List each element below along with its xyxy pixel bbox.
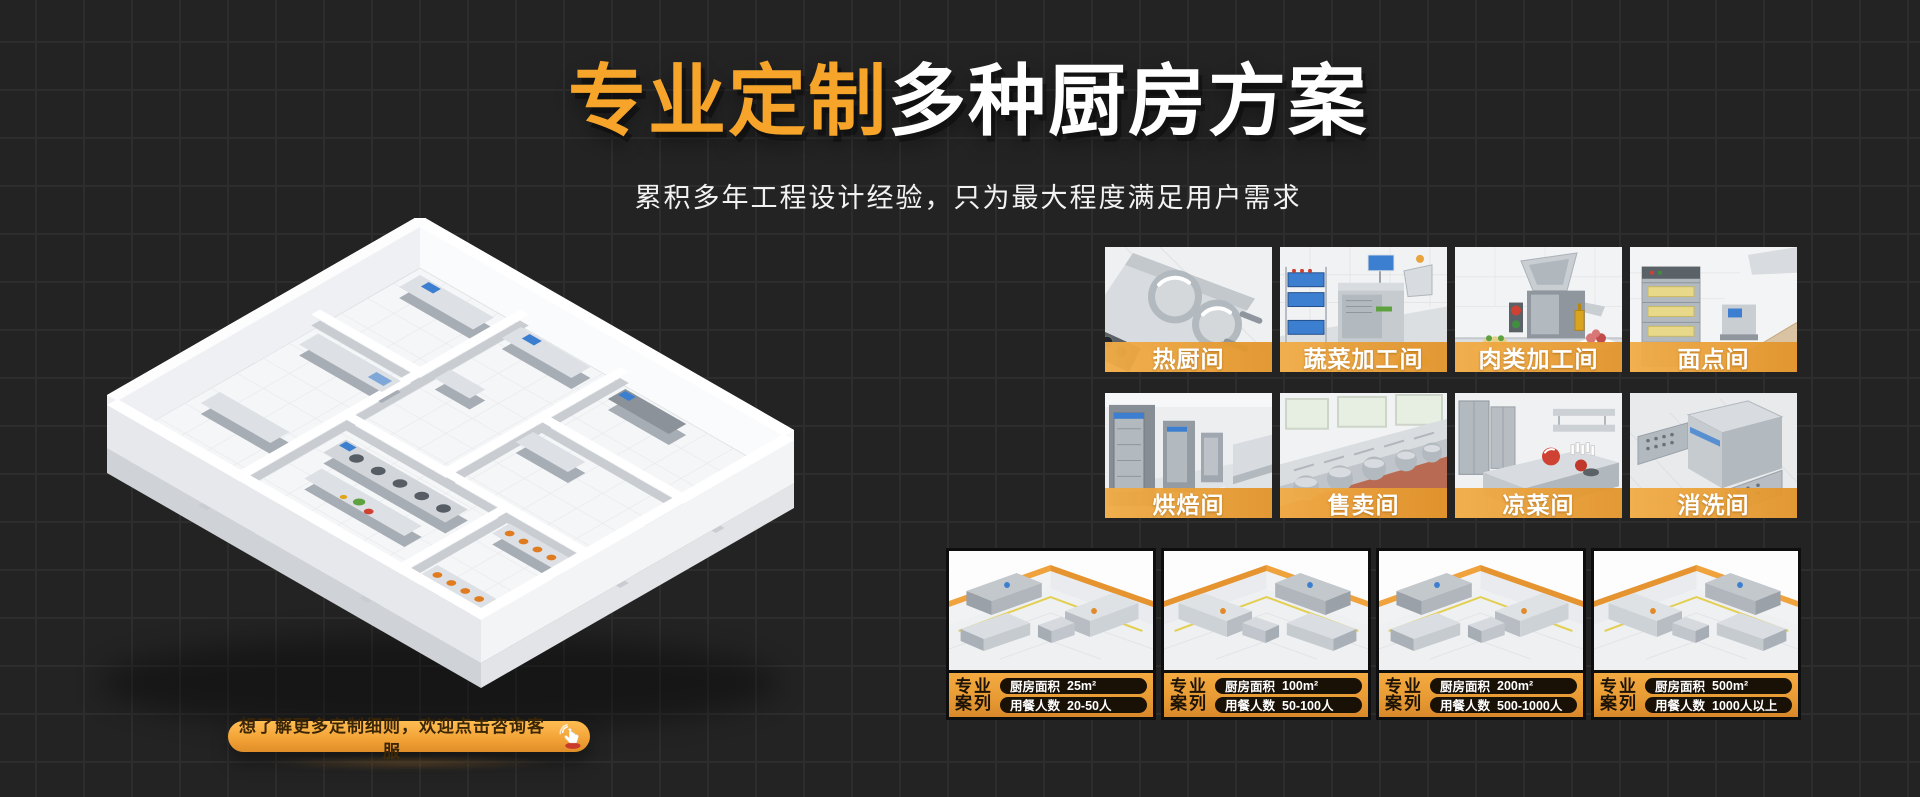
case-info-bar: 专业案列 厨房面积100m² 用餐人数50-100人 — [1164, 673, 1368, 717]
room-tile-vegetable-processing: 蔬菜加工间 — [1280, 247, 1447, 372]
page-title: 专业定制多种厨房方案 — [8, 62, 1920, 140]
room-tile-cold-dishes: 凉菜间 — [1455, 393, 1622, 518]
room-tile-label: 消洗间 — [1630, 488, 1797, 518]
room-tile-pastry: 面点间 — [1630, 247, 1797, 372]
title-rest: 多种厨房方案 — [888, 57, 1368, 145]
room-tile-hot-kitchen: 热厨间 — [1105, 247, 1272, 372]
room-tile-label: 蔬菜加工间 — [1280, 342, 1447, 372]
case-card-100m2: 专业案列 厨房面积100m² 用餐人数50-100人 — [1161, 548, 1371, 720]
page-subtitle: 累积多年工程设计经验，只为最大程度满足用户需求 — [8, 176, 1920, 215]
room-tile-label: 肉类加工间 — [1455, 342, 1622, 372]
case-tag: 专业案列 — [1385, 678, 1423, 713]
kitchen-area-pill: 厨房面积500m² — [1645, 678, 1792, 694]
consult-button-label: 想了解更多定制细则，欢迎点击咨询客服 — [234, 712, 550, 762]
case-kitchen-3d-photo — [1594, 551, 1798, 670]
click-hand-icon — [558, 724, 584, 750]
case-kitchen-3d-photo — [1379, 551, 1583, 670]
room-tile-label: 面点间 — [1630, 342, 1797, 372]
case-card-200m2: 专业案列 厨房面积200m² 用餐人数500-1000人 — [1376, 548, 1586, 720]
room-tile-label: 热厨间 — [1105, 342, 1272, 372]
case-card-25m2: 专业案列 厨房面积25m² 用餐人数20-50人 — [946, 548, 1156, 720]
case-row: 专业案列 厨房面积25m² 用餐人数20-50人 专业案列 厨房面积100m² … — [946, 548, 1801, 720]
room-tile-meat-processing: 肉类加工间 — [1455, 247, 1622, 372]
case-tag: 专业案列 — [1170, 678, 1208, 713]
kitchen-solutions-banner: 专业定制多种厨房方案 累积多年工程设计经验，只为最大程度满足用户需求 — [0, 0, 1920, 797]
case-info-bar: 专业案列 厨房面积200m² 用餐人数500-1000人 — [1379, 673, 1583, 717]
room-tile-dishwashing: 消洗间 — [1630, 393, 1797, 518]
kitchen-area-pill: 厨房面积25m² — [1000, 678, 1147, 694]
kitchen-floorplan-3d-illustration — [30, 218, 820, 763]
case-kitchen-3d-photo — [949, 551, 1153, 670]
case-kitchen-3d-photo — [1164, 551, 1368, 670]
room-tile-serving: 售卖间 — [1280, 393, 1447, 518]
case-info-bar: 专业案列 厨房面积25m² 用餐人数20-50人 — [949, 673, 1153, 717]
diner-count-pill: 用餐人数50-100人 — [1215, 697, 1362, 713]
kitchen-area-pill: 厨房面积100m² — [1215, 678, 1362, 694]
case-tag: 专业案列 — [955, 678, 993, 713]
room-tile-label: 凉菜间 — [1455, 488, 1622, 518]
title-highlight: 专业定制 — [568, 57, 888, 145]
room-grid: 热厨间 — [1105, 247, 1797, 518]
room-tile-label: 售卖间 — [1280, 488, 1447, 518]
diner-count-pill: 用餐人数500-1000人 — [1430, 697, 1577, 713]
room-tile-baking: 烘焙间 — [1105, 393, 1272, 518]
diner-count-pill: 用餐人数20-50人 — [1000, 697, 1147, 713]
case-tag: 专业案列 — [1600, 678, 1638, 713]
consult-button[interactable]: 想了解更多定制细则，欢迎点击咨询客服 — [228, 721, 590, 752]
diner-count-pill: 用餐人数1000人以上 — [1645, 697, 1792, 713]
kitchen-area-pill: 厨房面积200m² — [1430, 678, 1577, 694]
case-info-bar: 专业案列 厨房面积500m² 用餐人数1000人以上 — [1594, 673, 1798, 717]
case-card-500m2: 专业案列 厨房面积500m² 用餐人数1000人以上 — [1591, 548, 1801, 720]
room-tile-label: 烘焙间 — [1105, 488, 1272, 518]
